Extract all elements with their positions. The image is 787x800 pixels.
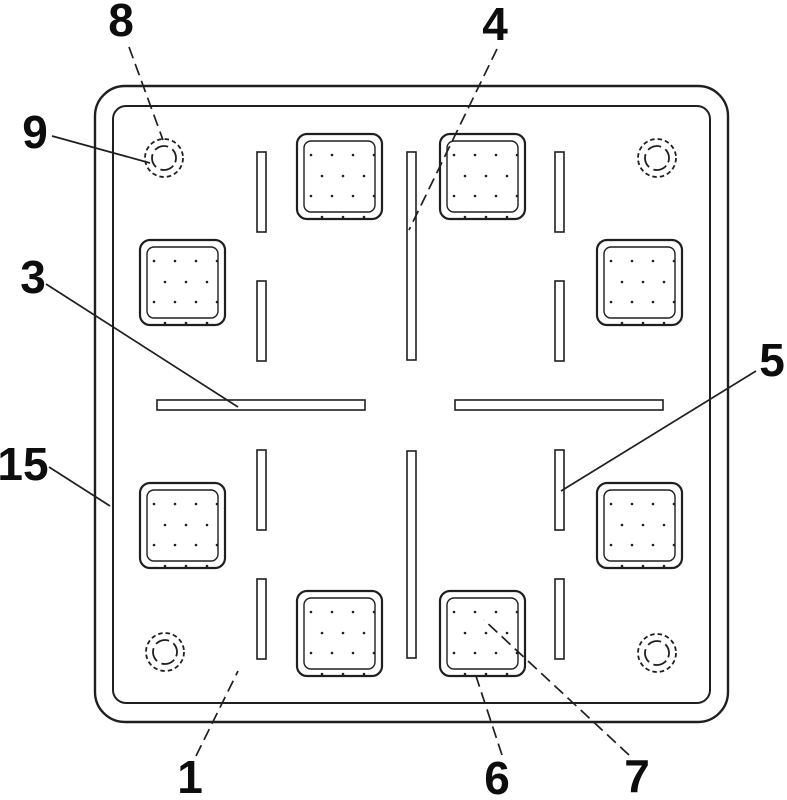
pad-texture-dot: [610, 301, 613, 304]
pad-texture-dot: [331, 652, 334, 655]
pad-texture-dot: [652, 301, 655, 304]
pad-texture-dot: [631, 503, 634, 506]
pad-texture-dot: [331, 611, 334, 614]
pad-texture-dot: [610, 544, 613, 547]
pad-texture-dot: [363, 175, 366, 178]
pad-texture-dot: [321, 175, 324, 178]
pad-texture-dot: [206, 281, 209, 284]
pad-texture-dot: [164, 322, 167, 325]
slot: [455, 400, 663, 410]
pad-texture-dot: [195, 544, 198, 547]
drawing-background: [0, 0, 787, 800]
pad-texture-dot: [642, 524, 645, 527]
pad-texture-dot: [195, 301, 198, 304]
plate-diagram: 8931545167: [0, 0, 787, 800]
pad-texture-dot: [474, 195, 477, 198]
pad-texture-dot: [673, 503, 676, 506]
pad-texture-dot: [516, 195, 519, 198]
pad-texture-dot: [495, 652, 498, 655]
slot: [555, 579, 564, 659]
pad-texture-dot: [174, 301, 177, 304]
pad-texture-dot: [342, 632, 345, 635]
pad-texture-dot: [216, 503, 219, 506]
slot: [407, 451, 416, 658]
pad-texture-dot: [373, 154, 376, 157]
pad-texture-dot: [495, 154, 498, 157]
pad-texture-dot: [474, 652, 477, 655]
slot: [257, 450, 266, 530]
patent-figure-page: 8931545167: [0, 0, 787, 800]
pad-texture-dot: [153, 503, 156, 506]
pad-texture-dot: [453, 154, 456, 157]
pad-texture-dot: [621, 281, 624, 284]
pad-texture-dot: [642, 281, 645, 284]
pad-texture-dot: [610, 503, 613, 506]
pad-texture-dot: [206, 322, 209, 325]
pad-texture-dot: [342, 216, 345, 219]
pad-texture-dot: [642, 322, 645, 325]
pad-texture-dot: [631, 544, 634, 547]
pad-texture-dot: [153, 260, 156, 263]
suction-pad-outer: [297, 591, 382, 676]
pad-texture-dot: [485, 673, 488, 676]
pad-texture-dot: [164, 565, 167, 568]
pad-texture-dot: [516, 611, 519, 614]
pad-texture-dot: [331, 154, 334, 157]
pad-texture-dot: [174, 503, 177, 506]
pad-texture-dot: [331, 195, 334, 198]
pad-texture-dot: [195, 503, 198, 506]
pad-texture-dot: [352, 195, 355, 198]
pad-texture-dot: [195, 260, 198, 263]
pad-texture-dot: [206, 565, 209, 568]
pad-texture-dot: [453, 652, 456, 655]
pad-texture-dot: [506, 632, 509, 635]
ref-label-3: 3: [20, 251, 46, 303]
pad-texture-dot: [216, 260, 219, 263]
pad-texture-dot: [363, 673, 366, 676]
pad-texture-dot: [174, 260, 177, 263]
pad-texture-dot: [185, 281, 188, 284]
pad-texture-dot: [464, 632, 467, 635]
pad-texture-dot: [153, 544, 156, 547]
pad-texture-dot: [631, 301, 634, 304]
pad-texture-dot: [610, 260, 613, 263]
pad-texture-dot: [453, 195, 456, 198]
pad-texture-dot: [310, 611, 313, 614]
slot: [157, 400, 365, 410]
pad-texture-dot: [216, 301, 219, 304]
pad-texture-dot: [373, 611, 376, 614]
pad-texture-dot: [621, 322, 624, 325]
ref-label-4: 4: [482, 0, 508, 50]
pad-texture-dot: [652, 503, 655, 506]
pad-texture-dot: [174, 544, 177, 547]
pad-texture-dot: [485, 216, 488, 219]
ref-label-5: 5: [759, 334, 785, 386]
slot: [555, 152, 564, 232]
slot: [407, 152, 416, 360]
pad-texture-dot: [485, 632, 488, 635]
pad-texture-dot: [373, 652, 376, 655]
slot: [257, 579, 266, 659]
pad-texture-dot: [474, 611, 477, 614]
pad-texture-dot: [164, 524, 167, 527]
pad-texture-dot: [310, 652, 313, 655]
pad-texture-dot: [352, 611, 355, 614]
suction-pad-outer: [440, 591, 525, 676]
pad-texture-dot: [631, 260, 634, 263]
pad-texture-dot: [185, 524, 188, 527]
ref-label-6: 6: [484, 752, 510, 800]
pad-texture-dot: [206, 524, 209, 527]
pad-texture-dot: [321, 216, 324, 219]
suction-pad-outer: [440, 134, 525, 219]
slot: [555, 281, 564, 361]
pad-texture-dot: [352, 652, 355, 655]
pad-texture-dot: [474, 154, 477, 157]
pad-texture-dot: [663, 322, 666, 325]
pad-texture-dot: [453, 611, 456, 614]
ref-label-8: 8: [108, 0, 134, 46]
suction-pad-outer: [597, 240, 682, 325]
pad-texture-dot: [506, 175, 509, 178]
suction-pad-outer: [597, 483, 682, 568]
pad-texture-dot: [621, 565, 624, 568]
pad-texture-dot: [164, 281, 167, 284]
pad-texture-dot: [216, 544, 219, 547]
pad-texture-dot: [621, 524, 624, 527]
ref-label-15: 15: [0, 438, 49, 490]
pad-texture-dot: [310, 195, 313, 198]
pad-texture-dot: [321, 673, 324, 676]
pad-texture-dot: [663, 281, 666, 284]
pad-texture-dot: [663, 565, 666, 568]
pad-texture-dot: [185, 322, 188, 325]
pad-texture-dot: [464, 175, 467, 178]
pad-texture-dot: [673, 260, 676, 263]
pad-texture-dot: [673, 301, 676, 304]
pad-texture-dot: [363, 216, 366, 219]
suction-pad-outer: [140, 483, 225, 568]
ref-label-7: 7: [624, 750, 650, 800]
pad-texture-dot: [652, 544, 655, 547]
pad-texture-dot: [464, 673, 467, 676]
suction-pad-outer: [140, 240, 225, 325]
slot: [257, 281, 266, 361]
pad-texture-dot: [310, 154, 313, 157]
pad-texture-dot: [495, 195, 498, 198]
pad-texture-dot: [495, 611, 498, 614]
ref-label-9: 9: [22, 106, 48, 158]
pad-texture-dot: [342, 175, 345, 178]
pad-texture-dot: [506, 216, 509, 219]
pad-texture-dot: [642, 565, 645, 568]
pad-texture-dot: [373, 195, 376, 198]
ref-label-1: 1: [177, 751, 203, 800]
pad-texture-dot: [321, 632, 324, 635]
pad-texture-dot: [342, 673, 345, 676]
pad-texture-dot: [352, 154, 355, 157]
pad-texture-dot: [663, 524, 666, 527]
pad-texture-dot: [185, 565, 188, 568]
pad-texture-dot: [485, 175, 488, 178]
slot: [257, 152, 266, 232]
pad-texture-dot: [652, 260, 655, 263]
pad-texture-dot: [153, 301, 156, 304]
pad-texture-dot: [363, 632, 366, 635]
suction-pad-outer: [297, 134, 382, 219]
pad-texture-dot: [506, 673, 509, 676]
pad-texture-dot: [516, 154, 519, 157]
pad-texture-dot: [673, 544, 676, 547]
pad-texture-dot: [464, 216, 467, 219]
